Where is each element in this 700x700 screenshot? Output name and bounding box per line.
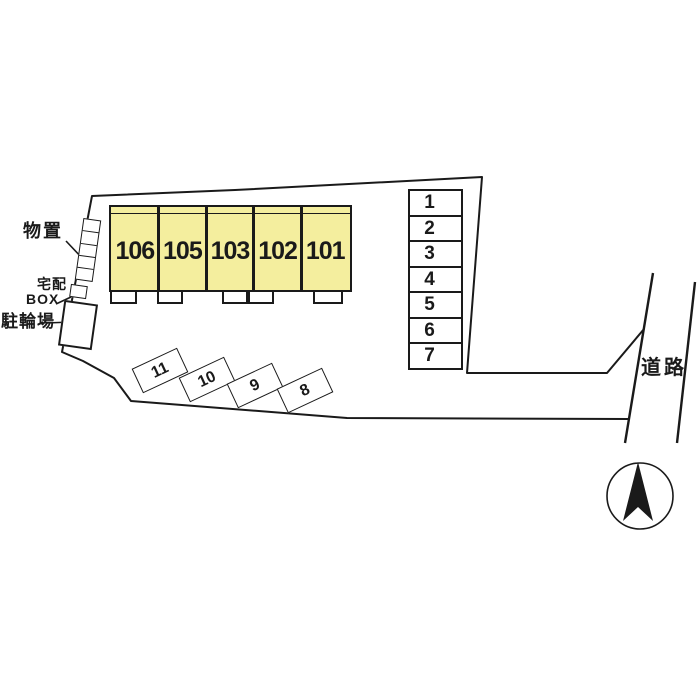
parking-space-3: 3 <box>408 240 463 268</box>
delivery-box <box>69 284 88 299</box>
parking-space-1: 1 <box>408 189 463 217</box>
parking-space-4: 4 <box>408 266 463 294</box>
entrance-porch <box>110 290 137 304</box>
bicycle-parking-label: 駐輪場 <box>1 313 55 330</box>
parking-space-2: 2 <box>408 215 463 243</box>
unit-divider <box>300 207 303 290</box>
unit-divider <box>205 207 208 290</box>
unit-divider <box>252 207 255 290</box>
site-plan-linework <box>0 0 700 700</box>
unit-102: 102 <box>254 213 302 290</box>
unit-105: 105 <box>159 213 207 290</box>
unit-101: 101 <box>301 213 349 290</box>
parking-space-7: 7 <box>408 342 463 370</box>
compass-north-icon <box>607 462 673 529</box>
delivery-box-label-jp: 宅配 <box>37 277 67 291</box>
entrance-porch <box>157 290 183 304</box>
entrance-porch <box>248 290 274 304</box>
unit-106: 106 <box>111 213 159 290</box>
road-label: 道路 <box>641 358 687 378</box>
storage-label: 物置 <box>23 222 63 240</box>
site-plan: 106 105 103 102 101 1 2 3 4 5 6 7 11 10 … <box>0 0 700 700</box>
entrance-porch <box>313 290 343 304</box>
parking-space-6: 6 <box>408 317 463 345</box>
bicycle-parking-area <box>58 300 98 350</box>
unit-103: 103 <box>206 213 254 290</box>
entrance-porch <box>222 290 248 304</box>
unit-divider <box>157 207 160 290</box>
parking-space-5: 5 <box>408 291 463 319</box>
delivery-box-label-en: BOX <box>26 292 59 306</box>
storage-cell <box>76 268 93 281</box>
apartment-building: 106 105 103 102 101 <box>109 205 352 292</box>
